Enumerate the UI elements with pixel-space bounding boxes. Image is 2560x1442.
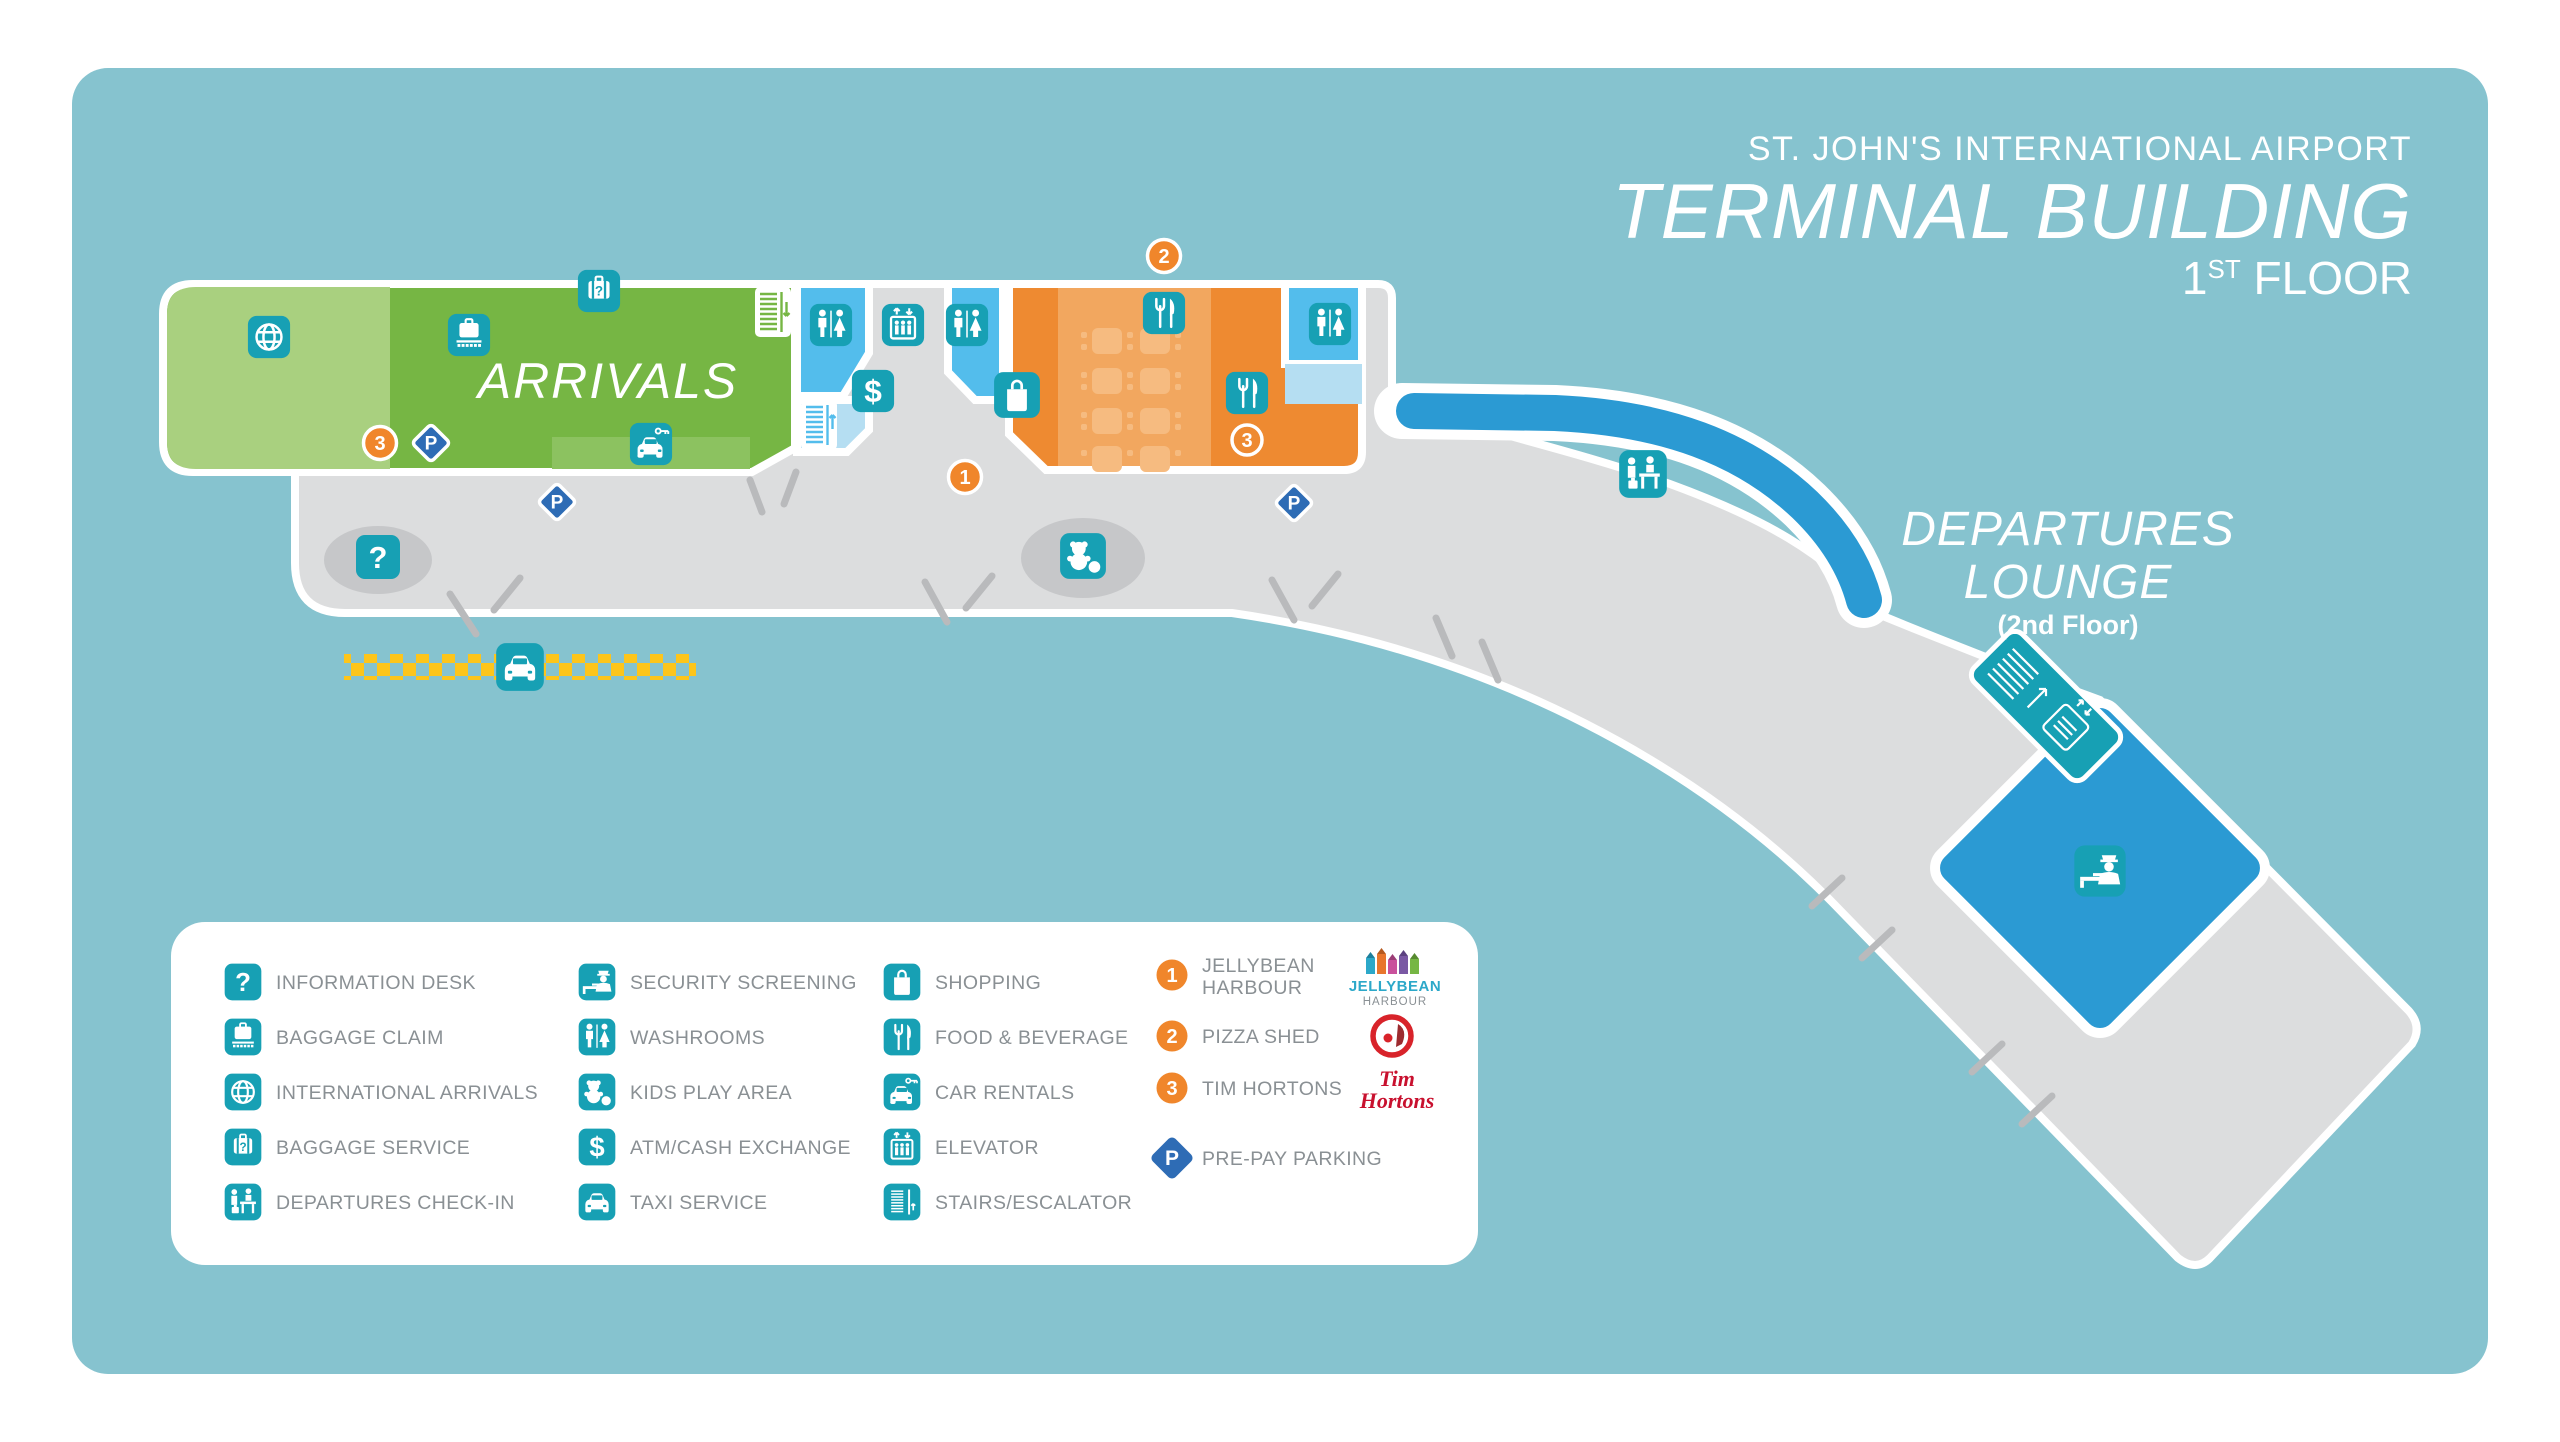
baggage-service-icon [225,1129,262,1166]
legend-label: SHOPPING [935,972,1041,994]
legend-label: BAGGAGE CLAIM [276,1027,444,1049]
svg-text:3: 3 [374,433,385,455]
taxi-service-icon [496,643,544,691]
svg-text:P: P [1165,1147,1179,1170]
elevator-icon [882,304,924,346]
stairs-down-icon [755,287,791,337]
washrooms-icon-right [1309,303,1351,345]
legend-label: DEPARTURES CHECK-IN [276,1192,515,1214]
legend-label: ATM/CASH EXCHANGE [630,1137,851,1159]
information-desk-icon [356,535,400,579]
washrooms-icon [579,1019,616,1056]
food-beverage-icon [884,1019,921,1056]
legend-label: WASHROOMS [630,1027,765,1049]
information-desk-icon [225,964,262,1001]
baggage-service-icon [578,270,620,312]
svg-text:3: 3 [1241,430,1252,452]
departures-check-in-icon [225,1184,262,1221]
legend-label: TAXI SERVICE [630,1192,767,1214]
shopping-icon [994,372,1040,418]
pizza-shed-logo [1373,1017,1411,1055]
washrooms-right-lightblue [1285,364,1362,404]
legend-label: STAIRS/ESCALATOR [935,1192,1132,1214]
legend-label: KIDS PLAY AREA [630,1082,792,1104]
svg-text:LOUNGE: LOUNGE [1964,556,2173,609]
svg-text:P: P [551,493,564,514]
washrooms-icon-mid [946,304,988,346]
security-screening-icon [579,964,616,1001]
svg-text:2: 2 [1166,1026,1177,1048]
svg-text:JELLYBEAN: JELLYBEAN [1202,955,1315,977]
kids-play-area-icon [579,1074,616,1111]
security-screening-icon [2074,845,2125,896]
taxi-service-icon [579,1184,616,1221]
airport-terminal-map: ? [0,0,2560,1442]
marker-jellybean-harbour: 1 [949,461,982,494]
svg-text:2: 2 [1158,246,1169,268]
international-arrivals-icon [248,316,290,358]
marker-tim-hortons-arrivals: 3 [364,427,397,460]
svg-text:3: 3 [1166,1078,1177,1100]
departures-check-in-icon [1619,450,1667,498]
svg-text:1: 1 [959,467,970,489]
svg-text:P: P [1288,494,1301,515]
atm-cash-exchange-icon [579,1129,616,1166]
airport-name: ST. JOHN'S INTERNATIONAL AIRPORT [1748,130,2412,168]
baggage-claim-icon [448,314,490,356]
legend-label: CAR RENTALS [935,1082,1074,1104]
food-beverage-icon-right [1226,372,1268,414]
legend-label: BAGGAGE SERVICE [276,1137,470,1159]
international-arrivals-area [167,287,390,469]
svg-text:PRE-PAY PARKING: PRE-PAY PARKING [1202,1148,1382,1170]
washrooms-icon-left [810,304,852,346]
stairs-up-icon [801,400,837,450]
atm-icon [852,370,894,412]
legend-vendor-pizza-shed: 2 PIZZA SHED [1157,1021,1320,1052]
legend-label: ELEVATOR [935,1137,1039,1159]
legend-label: INFORMATION DESK [276,972,476,994]
svg-text:P: P [425,434,438,455]
kids-play-area-icon [1060,533,1106,579]
baggage-claim-icon [225,1019,262,1056]
svg-text:(2nd Floor): (2nd Floor) [1998,610,2139,640]
page-title: TERMINAL BUILDING [1612,167,2412,255]
svg-text:JELLYBEAN: JELLYBEAN [1349,978,1441,995]
arrivals-label: ARRIVALS [475,353,739,409]
svg-text:1: 1 [1166,965,1177,987]
stairs-escalator-icon [884,1184,921,1221]
legend-label: INTERNATIONAL ARRIVALS [276,1082,538,1104]
marker-pizza-shed: 2 [1148,240,1181,273]
shopping-icon [884,964,921,1001]
svg-text:PIZZA SHED: PIZZA SHED [1202,1026,1320,1048]
legend-label: FOOD & BEVERAGE [935,1027,1128,1049]
svg-text:DEPARTURES: DEPARTURES [1901,503,2235,556]
car-rentals-icon [630,423,672,465]
svg-text:HARBOUR: HARBOUR [1202,977,1302,999]
svg-text:Hortons: Hortons [1359,1088,1435,1113]
svg-text:HARBOUR: HARBOUR [1363,996,1428,1008]
elevator-icon [884,1129,921,1166]
food-beverage-icon-top [1143,292,1185,334]
svg-text:TIM HORTONS: TIM HORTONS [1202,1078,1342,1100]
legend: INFORMATION DESK BAGGAGE CLAIM INTERNATI… [171,922,1478,1265]
car-rentals-icon [884,1074,921,1111]
international-arrivals-icon [225,1074,262,1111]
legend-label: SECURITY SCREENING [630,972,857,994]
food-court-seating [1058,288,1211,466]
